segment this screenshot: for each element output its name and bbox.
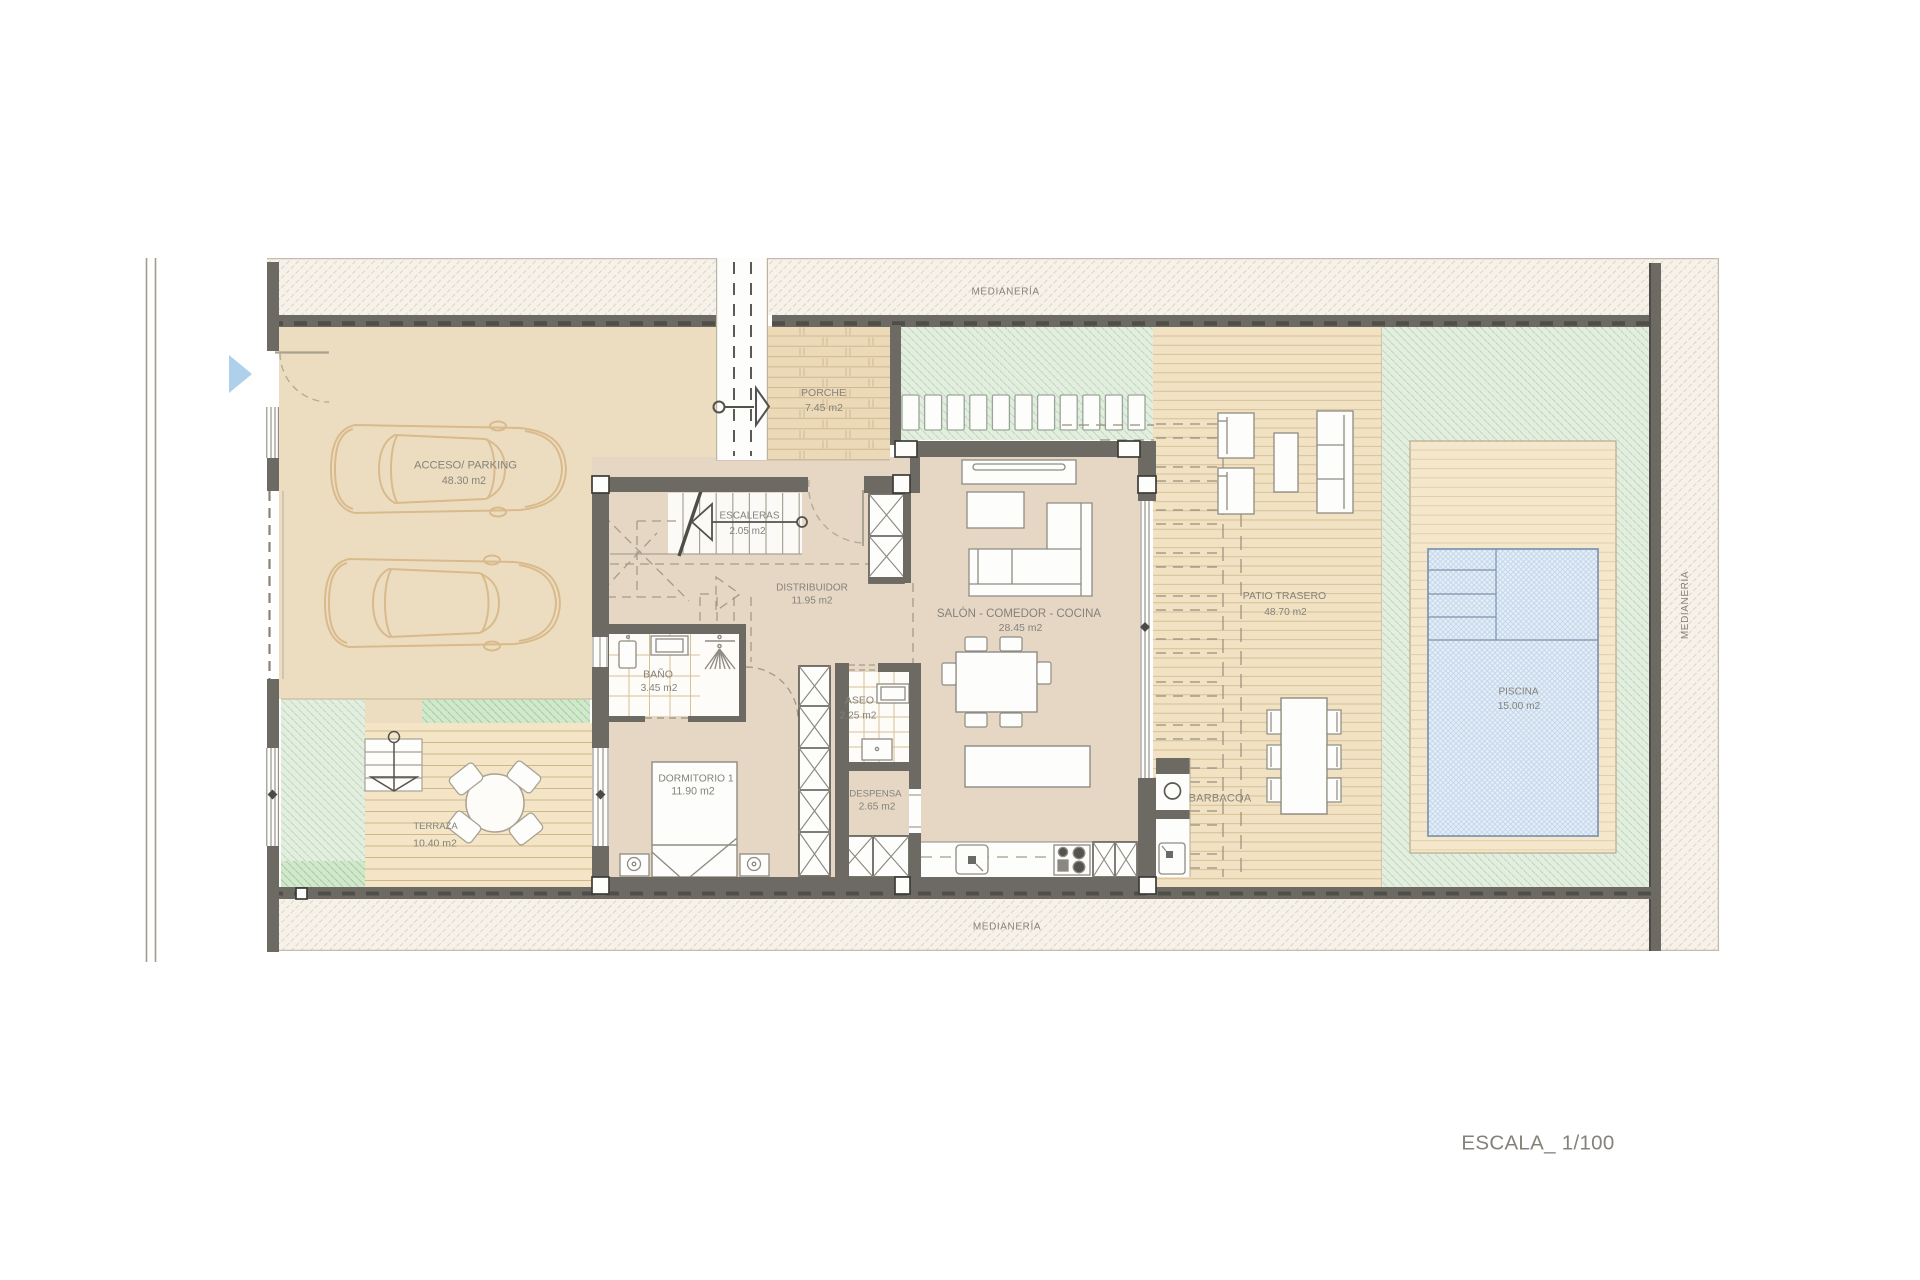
svg-text:DORMITORIO 1: DORMITORIO 1	[658, 774, 734, 785]
svg-text:BAÑO: BAÑO	[643, 668, 673, 681]
svg-text:48.30 m2: 48.30 m2	[442, 475, 486, 487]
svg-text:BARBACOA: BARBACOA	[1189, 793, 1252, 805]
svg-text:10.40 m2: 10.40 m2	[413, 838, 457, 850]
svg-text:MEDIANERÍA: MEDIANERÍA	[971, 285, 1039, 298]
svg-text:15.00 m2: 15.00 m2	[1498, 701, 1541, 712]
svg-text:ACCESO/ PARKING: ACCESO/ PARKING	[414, 460, 517, 472]
svg-text:ESCALA_ 1/100: ESCALA_ 1/100	[1461, 1132, 1614, 1155]
svg-text:DISTRIBUIDOR: DISTRIBUIDOR	[776, 583, 848, 594]
svg-text:PISCINA: PISCINA	[1498, 687, 1538, 698]
svg-text:28.45 m2: 28.45 m2	[999, 622, 1043, 634]
svg-text:TERRAZA: TERRAZA	[413, 821, 458, 832]
svg-text:MEDIANERÍA: MEDIANERÍA	[1678, 571, 1691, 639]
svg-text:2.25 m2: 2.25 m2	[840, 711, 877, 722]
svg-text:ASEO: ASEO	[845, 695, 874, 707]
svg-text:PATIO TRASERO: PATIO TRASERO	[1243, 590, 1326, 602]
svg-text:11.90 m2: 11.90 m2	[671, 786, 714, 798]
svg-text:MEDIANERÍA: MEDIANERÍA	[973, 920, 1041, 933]
svg-text:SALÓN - COMEDOR - COCINA: SALÓN - COMEDOR - COCINA	[937, 607, 1102, 620]
svg-text:3.45 m2: 3.45 m2	[641, 683, 678, 694]
svg-text:7.45 m2: 7.45 m2	[805, 402, 843, 414]
svg-text:2.65 m2: 2.65 m2	[859, 802, 896, 813]
svg-text:2.05 m2: 2.05 m2	[729, 526, 766, 537]
svg-text:DESPENSA: DESPENSA	[849, 789, 902, 800]
svg-text:11.95 m2: 11.95 m2	[792, 596, 833, 607]
svg-text:ESCALERAS: ESCALERAS	[719, 511, 779, 522]
svg-text:PORCHE: PORCHE	[801, 387, 846, 399]
svg-text:48.70 m2: 48.70 m2	[1264, 607, 1307, 618]
